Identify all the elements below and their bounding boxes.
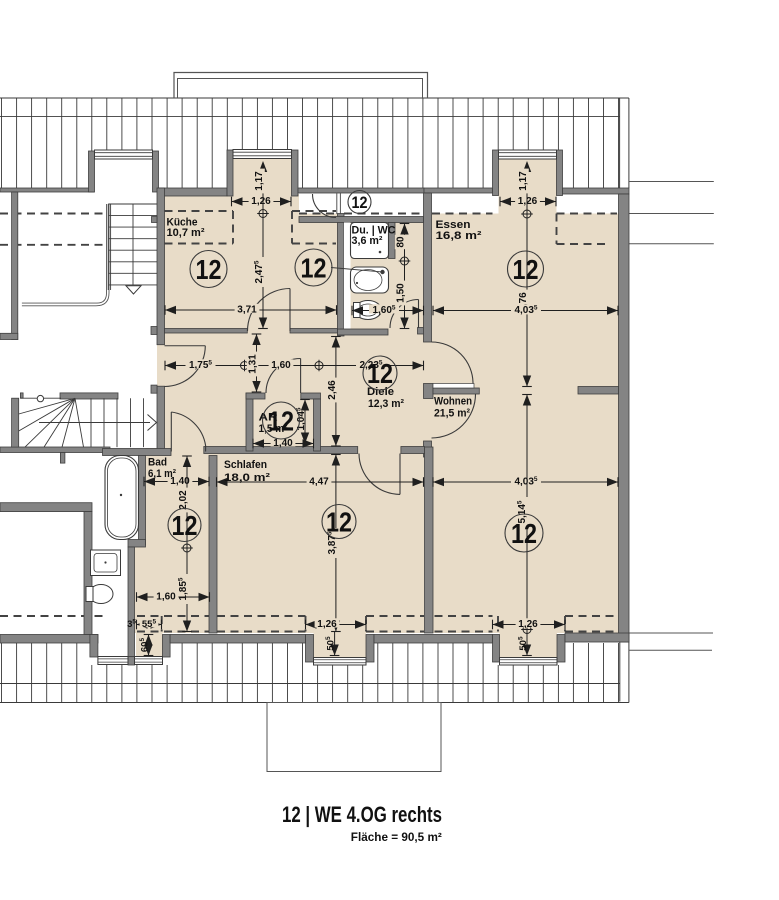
svg-text:10,7 m²: 10,7 m² bbox=[167, 227, 205, 239]
svg-text:12,3 m²: 12,3 m² bbox=[368, 398, 404, 410]
svg-text:16,8 m²: 16,8 m² bbox=[436, 230, 482, 242]
svg-text:Fläche = 90,5 m²: Fläche = 90,5 m² bbox=[351, 830, 442, 844]
svg-text:1,31: 1,31 bbox=[248, 354, 259, 374]
svg-text:12: 12 bbox=[326, 506, 352, 537]
svg-text:80: 80 bbox=[396, 236, 407, 248]
svg-text:1,17: 1,17 bbox=[254, 171, 265, 191]
svg-text:18,0 m²: 18,0 m² bbox=[224, 472, 270, 484]
svg-text:21,5 m²: 21,5 m² bbox=[434, 408, 470, 420]
svg-text:4,47: 4,47 bbox=[309, 477, 329, 488]
svg-text:3,71: 3,71 bbox=[237, 305, 257, 316]
svg-text:12: 12 bbox=[172, 510, 198, 541]
svg-text:12: 12 bbox=[196, 254, 222, 285]
svg-text:12 | WE 4.OG rechts: 12 | WE 4.OG rechts bbox=[282, 802, 442, 827]
svg-text:1,17: 1,17 bbox=[518, 171, 529, 191]
svg-text:Wohnen: Wohnen bbox=[434, 396, 472, 408]
svg-text:2,02: 2,02 bbox=[178, 490, 189, 510]
svg-text:2,46: 2,46 bbox=[327, 380, 338, 400]
svg-text:12: 12 bbox=[268, 405, 294, 436]
svg-text:12: 12 bbox=[352, 193, 368, 212]
svg-text:12: 12 bbox=[301, 252, 327, 283]
svg-text:Bad: Bad bbox=[148, 457, 167, 469]
svg-text:12: 12 bbox=[513, 254, 539, 285]
svg-text:1,26: 1,26 bbox=[518, 196, 538, 207]
svg-text:12: 12 bbox=[511, 518, 537, 549]
svg-text:Schlafen: Schlafen bbox=[224, 459, 267, 471]
svg-text:3,6 m²: 3,6 m² bbox=[352, 235, 383, 247]
svg-text:1,60: 1,60 bbox=[271, 360, 291, 371]
svg-text:1,26: 1,26 bbox=[317, 619, 337, 630]
svg-text:6,1 m²: 6,1 m² bbox=[148, 468, 176, 480]
svg-text:1,26: 1,26 bbox=[251, 196, 271, 207]
svg-text:1,60: 1,60 bbox=[156, 592, 176, 603]
svg-text:12: 12 bbox=[367, 358, 393, 389]
svg-text:1,40: 1,40 bbox=[273, 438, 293, 449]
svg-text:1,26: 1,26 bbox=[518, 619, 538, 630]
svg-text:1,50: 1,50 bbox=[396, 283, 407, 303]
